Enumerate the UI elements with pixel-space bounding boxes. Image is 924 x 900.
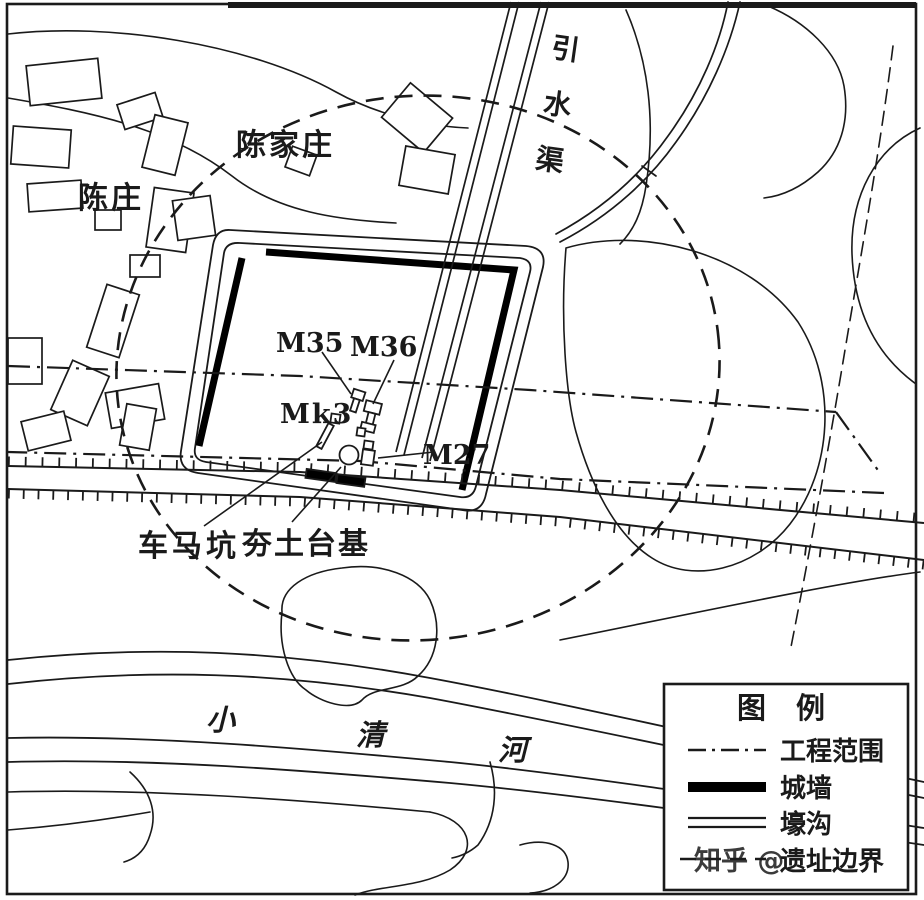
legend-label-0: 工程范围: [780, 737, 884, 767]
label-m35: M35: [276, 328, 343, 359]
label-chariot-pit: 车马坑: [138, 529, 240, 564]
label-chenjiazhuang: 陈家庄: [236, 128, 335, 163]
map-canvas: 陈家庄 陈庄 引水渠 M35 M36 Mk3 M27 车马坑 夯土台基 小 清 …: [0, 0, 924, 900]
legend: 图 例 工程范围 城墙 壕沟 知乎 @ 遗址边界: [664, 684, 908, 890]
legend-title: 图 例: [737, 691, 835, 725]
tomb-m27-shape: [361, 449, 375, 466]
round-pit-shape: [340, 446, 359, 465]
label-river: 小 清 河: [204, 703, 533, 766]
label-mk3: Mk3: [280, 399, 353, 430]
field-lines: [8, 762, 568, 895]
stream-lines: [556, 2, 740, 242]
label-m27: M27: [423, 440, 490, 471]
svg-text:河: 河: [496, 733, 533, 766]
legend-label-2: 壕沟: [780, 809, 832, 840]
svg-text:清: 清: [354, 718, 391, 751]
archaeological-site-map: { "map": { "labels": { "village_chenjiaz…: [0, 0, 924, 900]
label-chenzhuang: 陈庄: [78, 181, 144, 216]
legend-label-1: 城墙: [780, 774, 832, 804]
legend-label-3: 遗址边界: [780, 847, 884, 877]
label-m36: M36: [350, 332, 417, 363]
svg-text:小: 小: [204, 703, 242, 736]
legend-symbol-thick: [688, 782, 766, 792]
watermark: 知乎 @: [694, 846, 784, 877]
label-platform: 夯土台基: [241, 527, 370, 562]
pond-contour: [281, 567, 437, 706]
